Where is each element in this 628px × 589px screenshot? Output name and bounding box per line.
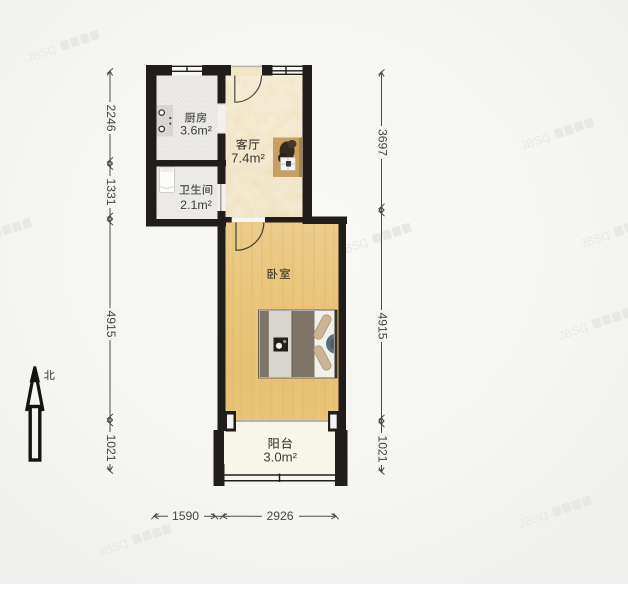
svg-text:2.1m²: 2.1m² xyxy=(180,198,212,212)
svg-text:7.4m²: 7.4m² xyxy=(231,151,265,166)
svg-text:4915: 4915 xyxy=(376,312,390,339)
svg-text:3.6m²: 3.6m² xyxy=(180,124,212,138)
svg-text:4915: 4915 xyxy=(104,310,118,337)
svg-text:1331: 1331 xyxy=(104,178,118,205)
svg-text:1590: 1590 xyxy=(172,509,199,523)
svg-text:2926: 2926 xyxy=(266,509,293,523)
svg-text:1021: 1021 xyxy=(376,435,390,462)
svg-text:2246: 2246 xyxy=(104,104,118,131)
svg-text:3697: 3697 xyxy=(376,129,390,156)
svg-text:1021: 1021 xyxy=(104,434,118,461)
svg-text:3.0m²: 3.0m² xyxy=(263,450,297,465)
